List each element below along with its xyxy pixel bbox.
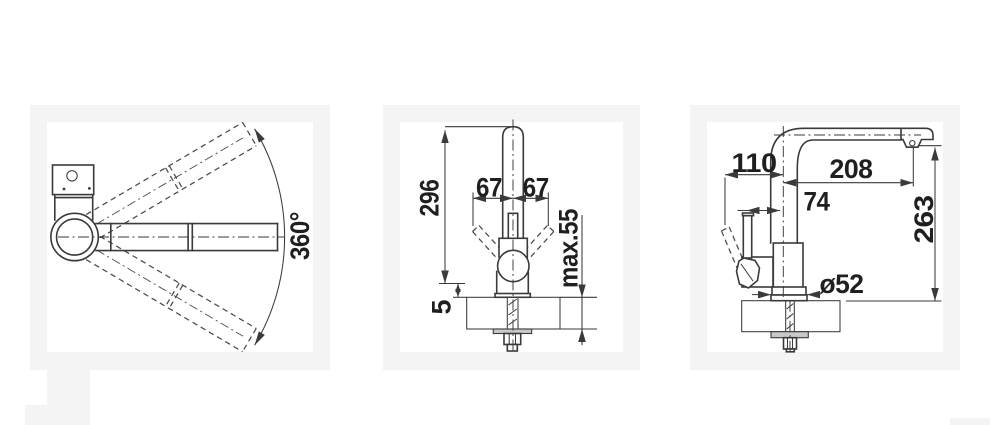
panel-side-view: 110 208 74 263 ø52 xyxy=(690,105,960,370)
dim-label-base-gap: 5 xyxy=(427,300,457,315)
dim-label-lever-left: 67 xyxy=(476,173,502,203)
lever-rod-side xyxy=(743,216,751,258)
panel-top-view: 360° xyxy=(30,105,330,370)
dim-label-lever-offset: 74 xyxy=(804,187,830,217)
background-shape xyxy=(47,370,90,425)
base-flare-side xyxy=(772,287,806,295)
faucet-dimension-sheet: 360° xyxy=(0,0,1000,425)
dim-label-height: 296 xyxy=(415,179,445,216)
dim-label-lever-right: 67 xyxy=(523,173,549,203)
dim-label-swivel-angle: 360° xyxy=(285,212,315,260)
dim-label-spout-reach: 208 xyxy=(830,154,873,184)
dim-label-base-diameter: ø52 xyxy=(820,269,864,299)
dim-label-outlet-height: 263 xyxy=(909,195,939,244)
dim-label-lever-reach: 110 xyxy=(732,148,777,178)
dim-label-counter-thickness: max.55 xyxy=(554,209,584,288)
background-shape xyxy=(950,418,990,425)
base-plate-side xyxy=(771,295,807,301)
background-shape xyxy=(25,405,47,425)
panel-front-view: 296 5 67 67 max.55 xyxy=(383,105,640,370)
